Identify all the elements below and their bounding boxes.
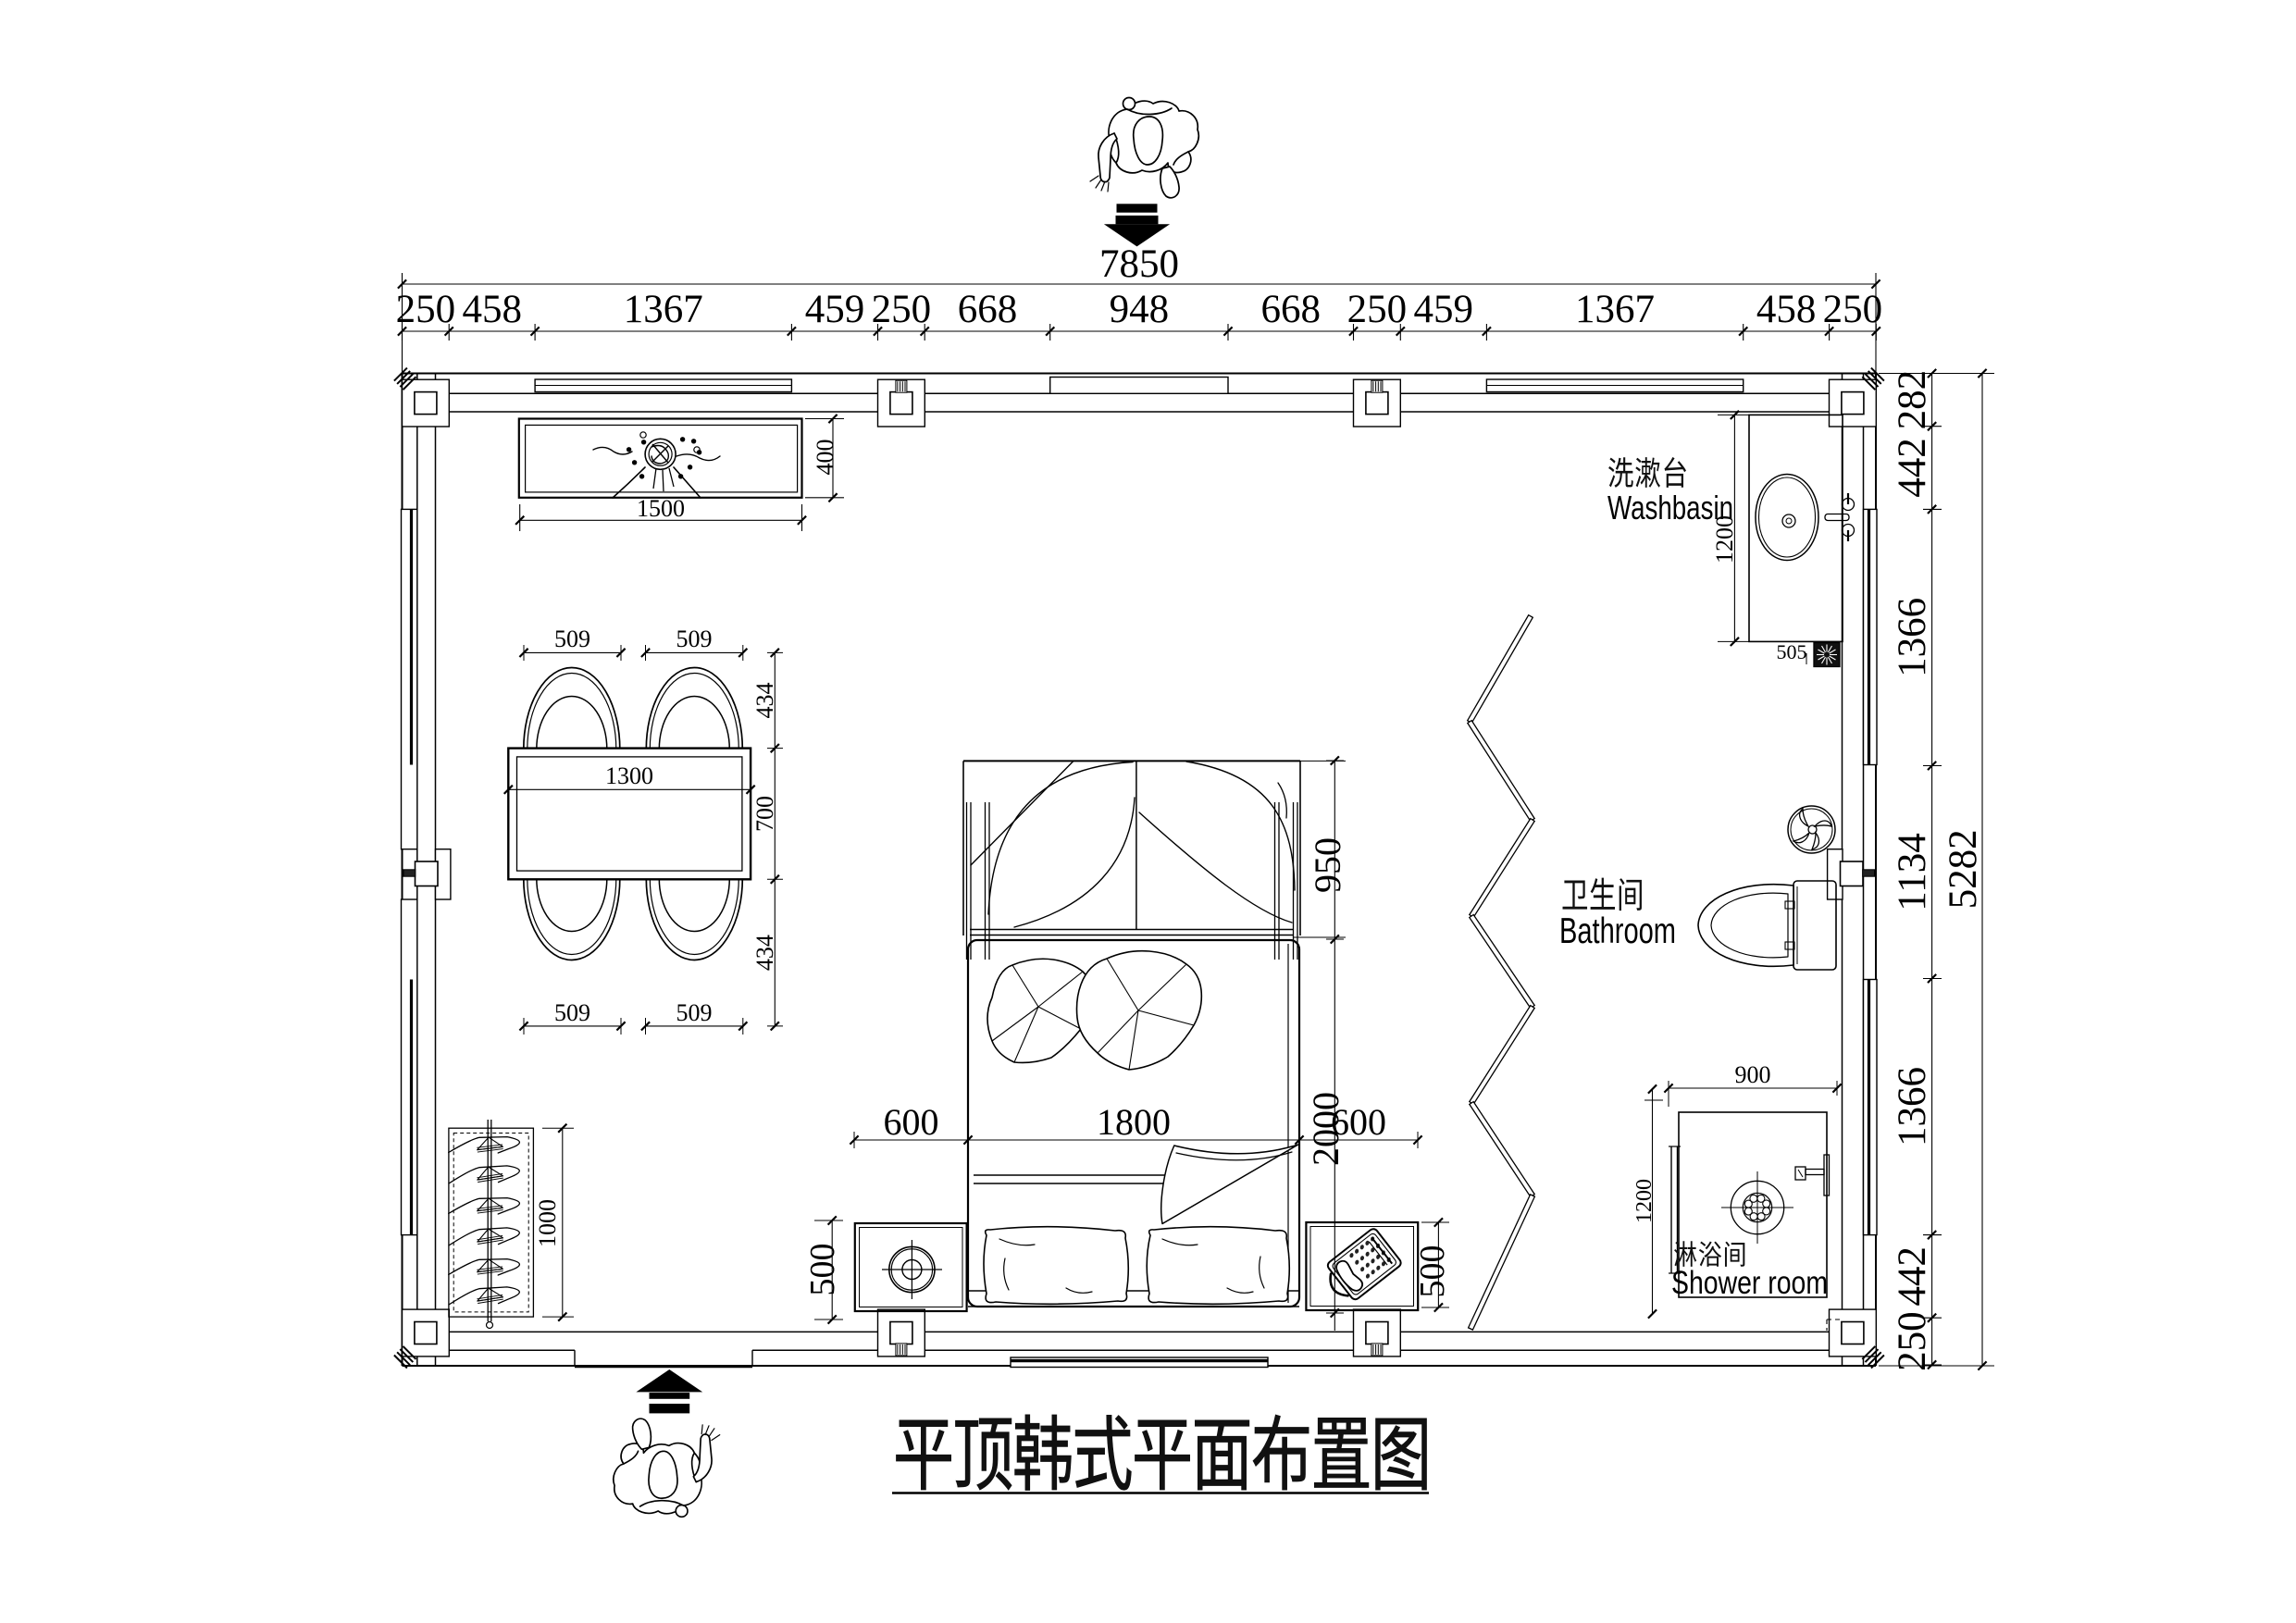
svg-text:900: 900 bbox=[1735, 1061, 1771, 1088]
svg-text:1366: 1366 bbox=[1891, 598, 1934, 677]
svg-text:1000: 1000 bbox=[534, 1199, 561, 1247]
svg-text:500: 500 bbox=[1413, 1245, 1452, 1298]
svg-text:459: 459 bbox=[805, 288, 865, 331]
svg-text:509: 509 bbox=[676, 999, 713, 1026]
svg-text:442: 442 bbox=[1891, 438, 1934, 498]
svg-text:Shower room: Shower room bbox=[1671, 1265, 1828, 1301]
svg-text:458: 458 bbox=[462, 288, 522, 331]
svg-text:250: 250 bbox=[872, 288, 932, 331]
svg-text:400: 400 bbox=[812, 440, 838, 476]
svg-text:282: 282 bbox=[1891, 370, 1934, 430]
svg-text:250: 250 bbox=[1891, 1311, 1934, 1371]
svg-text:250: 250 bbox=[1347, 288, 1408, 331]
svg-text:505: 505 bbox=[1777, 640, 1807, 663]
svg-text:1200: 1200 bbox=[1632, 1179, 1657, 1223]
svg-text:1366: 1366 bbox=[1891, 1067, 1934, 1146]
svg-text:700: 700 bbox=[751, 796, 778, 832]
svg-text:1500: 1500 bbox=[637, 495, 685, 522]
svg-text:1300: 1300 bbox=[605, 762, 653, 789]
svg-text:442: 442 bbox=[1891, 1246, 1934, 1307]
svg-text:459: 459 bbox=[1414, 288, 1474, 331]
svg-text:458: 458 bbox=[1756, 288, 1817, 331]
svg-text:250: 250 bbox=[396, 288, 456, 331]
svg-text:Bathroom: Bathroom bbox=[1559, 911, 1676, 951]
svg-text:1134: 1134 bbox=[1891, 833, 1934, 911]
svg-text:948: 948 bbox=[1110, 288, 1170, 331]
svg-text:5282: 5282 bbox=[1942, 829, 1985, 909]
svg-text:509: 509 bbox=[676, 626, 713, 652]
svg-text:950: 950 bbox=[1307, 837, 1348, 893]
svg-text:668: 668 bbox=[1261, 288, 1322, 331]
svg-text:Washbasin: Washbasin bbox=[1607, 489, 1733, 527]
svg-text:434: 434 bbox=[751, 683, 778, 719]
svg-text:509: 509 bbox=[554, 999, 590, 1026]
svg-text:434: 434 bbox=[751, 935, 778, 971]
svg-text:600: 600 bbox=[884, 1101, 939, 1143]
svg-text:1800: 1800 bbox=[1097, 1101, 1171, 1143]
svg-text:600: 600 bbox=[1331, 1101, 1386, 1143]
svg-text:500: 500 bbox=[803, 1244, 842, 1296]
svg-text:1367: 1367 bbox=[624, 288, 703, 331]
svg-text:7850: 7850 bbox=[1099, 242, 1179, 286]
svg-text:509: 509 bbox=[554, 626, 590, 652]
svg-text:250: 250 bbox=[1823, 288, 1883, 331]
svg-text:668: 668 bbox=[958, 288, 1018, 331]
svg-text:1367: 1367 bbox=[1575, 288, 1655, 331]
